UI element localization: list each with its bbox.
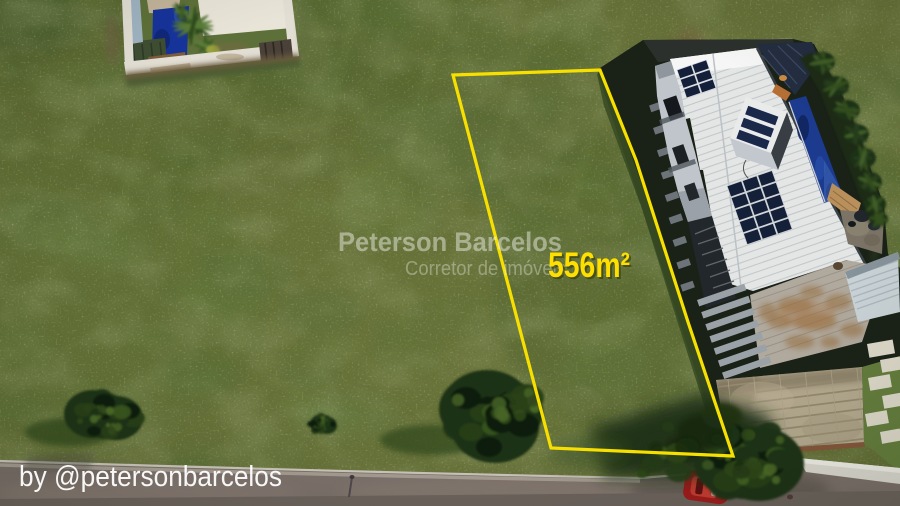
svg-text:Corretor de imóveis: Corretor de imóveis <box>405 258 566 280</box>
svg-text:by @petersonbarcelos: by @petersonbarcelos <box>19 461 282 493</box>
svg-text:Peterson Barcelos: Peterson Barcelos <box>338 227 562 257</box>
svg-text:556m²: 556m² <box>548 246 630 285</box>
